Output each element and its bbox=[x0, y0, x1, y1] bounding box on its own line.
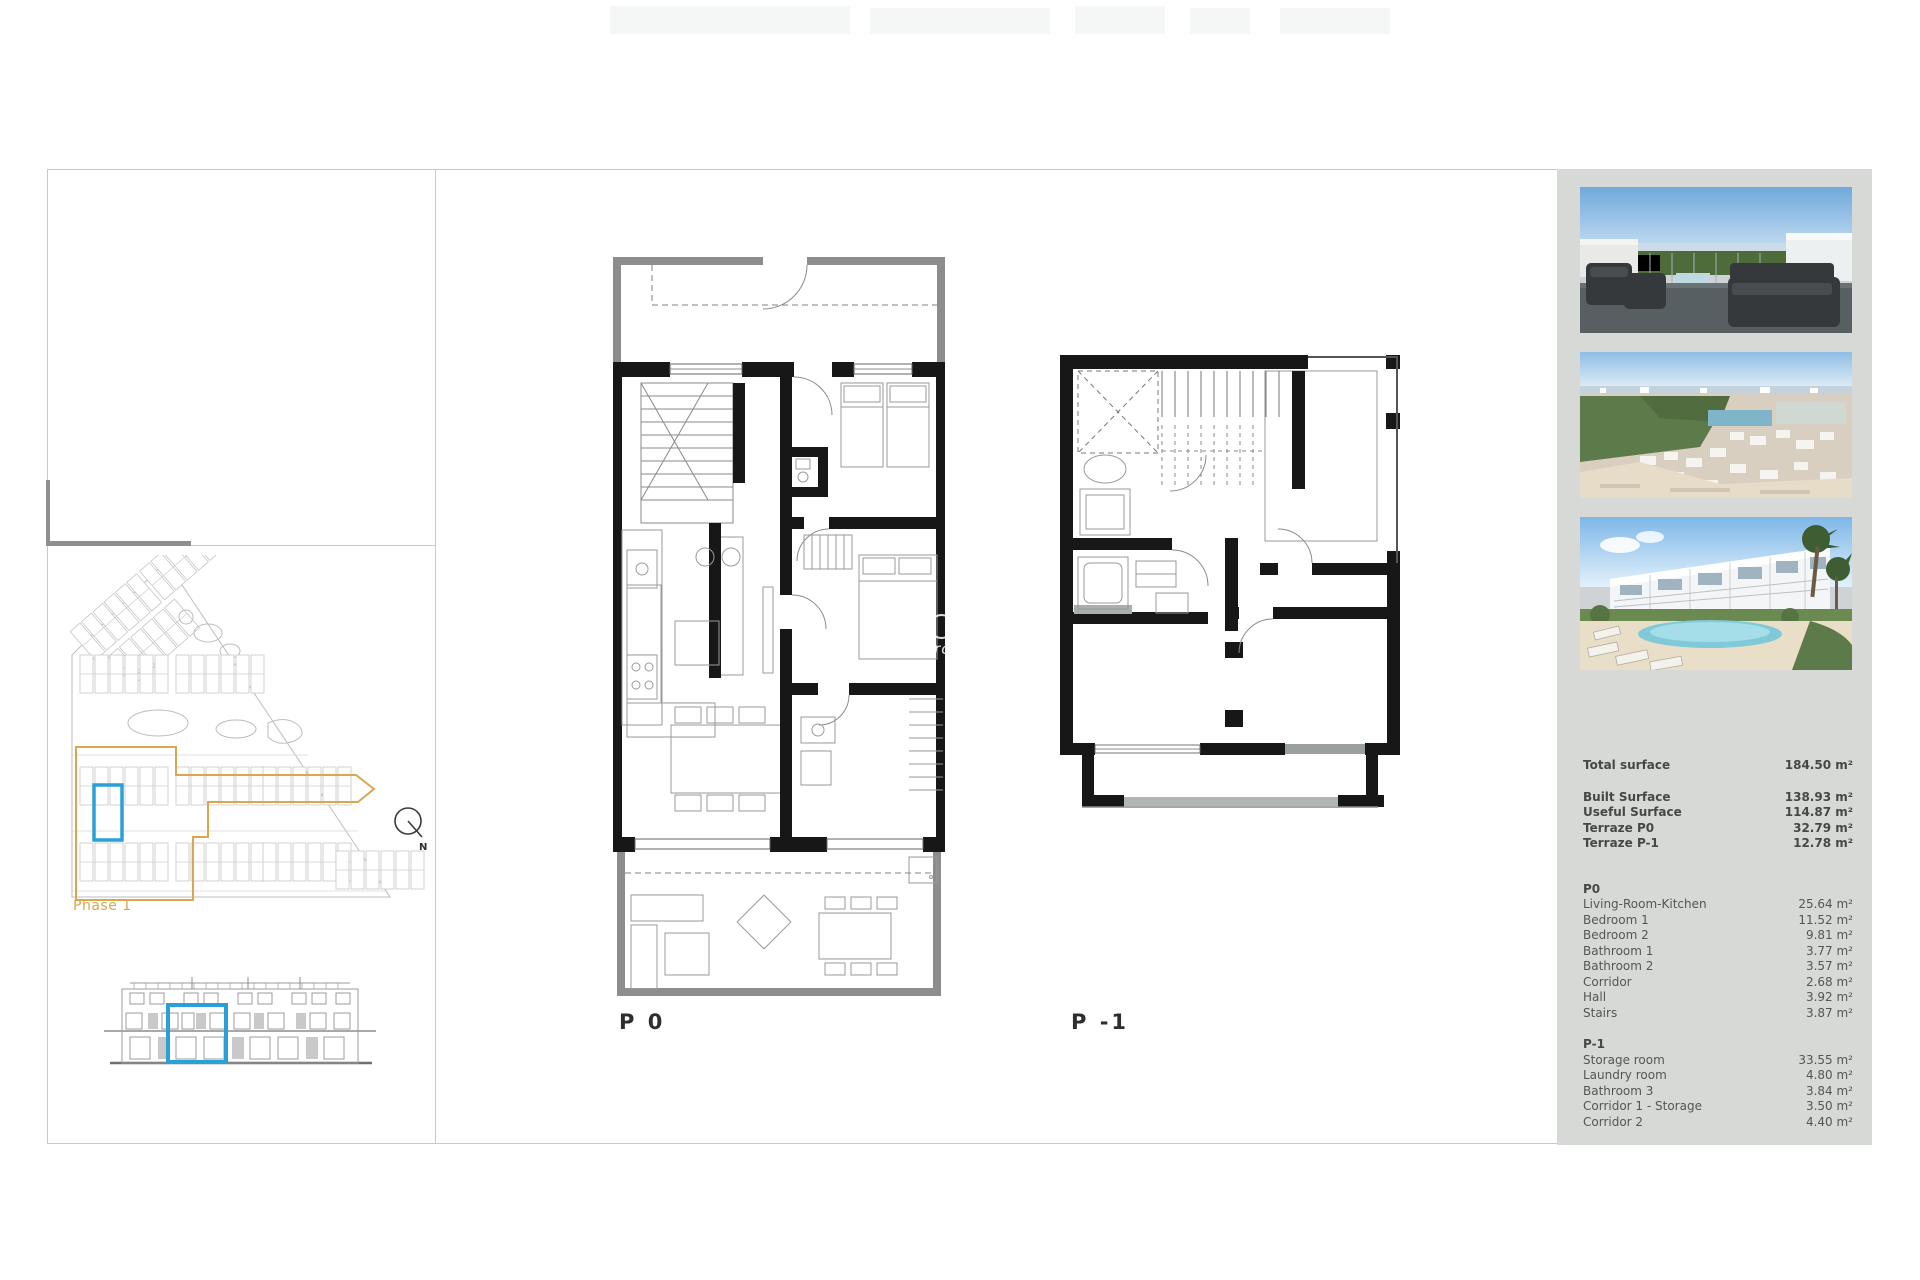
room-row-value: 3.57 m² bbox=[1806, 959, 1853, 975]
watermark-ring-icon bbox=[929, 614, 954, 639]
room-row: Bathroom 2 3.57 m² bbox=[1583, 959, 1853, 975]
floor-plan-p-1 bbox=[1060, 355, 1400, 825]
cropped-header-remnant bbox=[1280, 8, 1390, 34]
surface-row: Useful Surface 114.87 m² bbox=[1583, 805, 1853, 821]
room-row-label: Living-Room-Kitchen bbox=[1583, 897, 1707, 913]
p-1-section-heading: P-1 bbox=[1583, 1037, 1853, 1053]
room-row-value: 3.84 m² bbox=[1806, 1084, 1853, 1100]
photo-pool-render bbox=[1580, 517, 1852, 670]
plan-label-p0: P 0 bbox=[619, 1010, 665, 1034]
elevation-drawing bbox=[100, 975, 380, 1075]
floor-plan-p0 bbox=[613, 255, 945, 1000]
surface-row-value: 32.79 m² bbox=[1793, 821, 1853, 837]
plan-sheet-page: N Phase 1 bbox=[0, 0, 1920, 1280]
cropped-header-remnant bbox=[610, 6, 850, 34]
room-row-label: Bathroom 1 bbox=[1583, 944, 1653, 960]
room-row: Bathroom 1 3.77 m² bbox=[1583, 944, 1853, 960]
room-row-label: Storage room bbox=[1583, 1053, 1665, 1069]
room-row-label: Hall bbox=[1583, 990, 1606, 1006]
room-row-value: 33.55 m² bbox=[1798, 1053, 1853, 1069]
room-row: Corridor 2 4.40 m² bbox=[1583, 1115, 1853, 1131]
sheet-border-top bbox=[47, 169, 1557, 170]
corner-accent-horizontal bbox=[46, 541, 191, 546]
watermark-text: Pro bbox=[924, 640, 951, 658]
cropped-header-remnant bbox=[1190, 8, 1250, 34]
surface-row-value: 114.87 m² bbox=[1785, 805, 1853, 821]
phase1-label: Phase 1 bbox=[73, 898, 132, 914]
room-row: Bedroom 2 9.81 m² bbox=[1583, 928, 1853, 944]
surface-row: Terraze P-1 12.78 m² bbox=[1583, 836, 1853, 852]
room-row-value: 11.52 m² bbox=[1798, 913, 1853, 929]
sheet-border-left bbox=[47, 169, 48, 1144]
room-row-label: Laundry room bbox=[1583, 1068, 1667, 1084]
surface-row-label: Useful Surface bbox=[1583, 805, 1682, 821]
compass-north-label: N bbox=[419, 842, 427, 853]
room-row: Corridor 2.68 m² bbox=[1583, 975, 1853, 991]
cropped-header-remnant bbox=[870, 8, 1050, 34]
room-row-value: 3.50 m² bbox=[1806, 1099, 1853, 1115]
room-row-value: 2.68 m² bbox=[1806, 975, 1853, 991]
surface-summary: Total surface 184.50 m² Built Surface 13… bbox=[1583, 758, 1853, 1130]
plan-label-p-1: P -1 bbox=[1071, 1010, 1129, 1034]
room-row-value: 25.64 m² bbox=[1798, 897, 1853, 913]
room-row: Living-Room-Kitchen 25.64 m² bbox=[1583, 897, 1853, 913]
room-row: Bedroom 1 11.52 m² bbox=[1583, 913, 1853, 929]
room-row-label: Bedroom 1 bbox=[1583, 913, 1649, 929]
cropped-header-remnant bbox=[1075, 6, 1165, 34]
room-row-value: 3.77 m² bbox=[1806, 944, 1853, 960]
room-row: Corridor 1 - Storage 3.50 m² bbox=[1583, 1099, 1853, 1115]
info-panel: Total surface 184.50 m² Built Surface 13… bbox=[1557, 169, 1872, 1145]
room-row-label: Corridor bbox=[1583, 975, 1632, 991]
p-1-room-rows: Storage room 33.55 m² Laundry room 4.80 … bbox=[1583, 1053, 1853, 1131]
room-row-label: Stairs bbox=[1583, 1006, 1617, 1022]
room-row: Bathroom 3 3.84 m² bbox=[1583, 1084, 1853, 1100]
surface-row: Built Surface 138.93 m² bbox=[1583, 790, 1853, 806]
surface-row-value: 138.93 m² bbox=[1785, 790, 1853, 806]
room-row-value: 3.87 m² bbox=[1806, 1006, 1853, 1022]
surface-row-label: Terraze P0 bbox=[1583, 821, 1654, 837]
surface-row: Terraze P0 32.79 m² bbox=[1583, 821, 1853, 837]
room-row-value: 4.80 m² bbox=[1806, 1068, 1853, 1084]
room-row: Laundry room 4.80 m² bbox=[1583, 1068, 1853, 1084]
p0-section-heading: P0 bbox=[1583, 882, 1853, 898]
photo-aerial-view bbox=[1580, 352, 1852, 498]
room-row-label: Corridor 2 bbox=[1583, 1115, 1643, 1131]
room-row-label: Bathroom 3 bbox=[1583, 1084, 1653, 1100]
surface-row-label: Terraze P-1 bbox=[1583, 836, 1659, 852]
room-row: Hall 3.92 m² bbox=[1583, 990, 1853, 1006]
site-plan-drawing: N bbox=[58, 555, 438, 925]
total-surface-label: Total surface bbox=[1583, 758, 1670, 774]
surface-row-value: 12.78 m² bbox=[1793, 836, 1853, 852]
room-row-label: Bathroom 2 bbox=[1583, 959, 1653, 975]
room-row-value: 9.81 m² bbox=[1806, 928, 1853, 944]
surface-row-label: Built Surface bbox=[1583, 790, 1671, 806]
p0-room-rows: Living-Room-Kitchen 25.64 m² Bedroom 1 1… bbox=[1583, 897, 1853, 1021]
main-surface-rows: Built Surface 138.93 m² Useful Surface 1… bbox=[1583, 790, 1853, 852]
room-row-value: 3.92 m² bbox=[1806, 990, 1853, 1006]
compass-icon: N bbox=[395, 808, 427, 853]
room-row-value: 4.40 m² bbox=[1806, 1115, 1853, 1131]
room-row-label: Bedroom 2 bbox=[1583, 928, 1649, 944]
corner-accent-vertical bbox=[46, 480, 50, 543]
photo-terrace-render bbox=[1580, 187, 1852, 333]
room-row: Storage room 33.55 m² bbox=[1583, 1053, 1853, 1069]
room-row-label: Corridor 1 - Storage bbox=[1583, 1099, 1702, 1115]
room-row: Stairs 3.87 m² bbox=[1583, 1006, 1853, 1022]
total-surface-value: 184.50 m² bbox=[1785, 758, 1853, 774]
total-surface-row: Total surface 184.50 m² bbox=[1583, 758, 1853, 774]
sheet-border-bottom bbox=[47, 1143, 1557, 1144]
